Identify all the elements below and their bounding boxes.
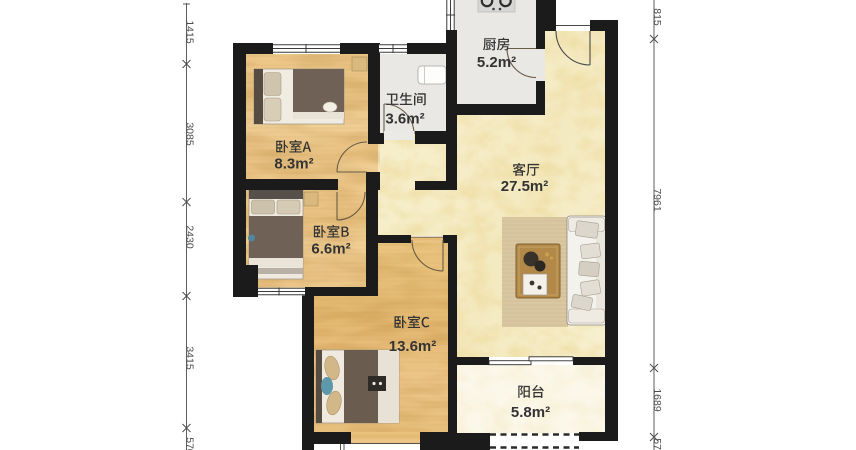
svg-text:13.6m²: 13.6m² bbox=[389, 338, 437, 355]
svg-text:2430: 2430 bbox=[184, 225, 196, 249]
svg-text:1415: 1415 bbox=[184, 20, 196, 44]
svg-text:3415: 3415 bbox=[184, 346, 196, 370]
svg-text:570: 570 bbox=[651, 438, 663, 450]
svg-text:570: 570 bbox=[184, 437, 196, 450]
svg-text:1689: 1689 bbox=[651, 388, 663, 412]
svg-text:3.6m²: 3.6m² bbox=[385, 111, 424, 128]
svg-text:5.8m²: 5.8m² bbox=[511, 404, 550, 421]
svg-text:3085: 3085 bbox=[184, 122, 196, 146]
svg-text:5.2m²: 5.2m² bbox=[477, 54, 516, 71]
svg-text:27.5m²: 27.5m² bbox=[501, 178, 549, 195]
svg-text:7961: 7961 bbox=[651, 188, 663, 212]
svg-text:6.6m²: 6.6m² bbox=[311, 241, 350, 258]
svg-text:8.3m²: 8.3m² bbox=[274, 156, 313, 173]
svg-text:815: 815 bbox=[651, 8, 663, 26]
